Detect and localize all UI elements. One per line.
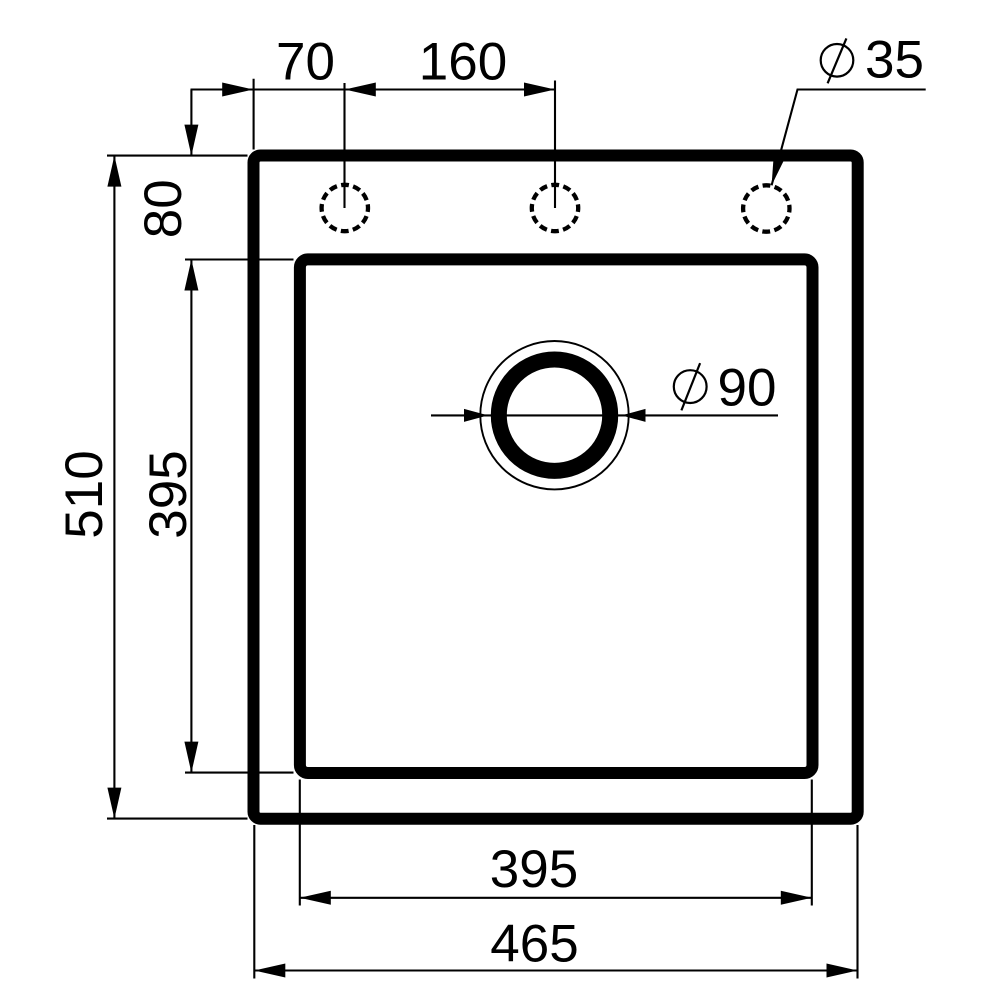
svg-text:395: 395 xyxy=(490,840,578,899)
svg-text:465: 465 xyxy=(490,915,578,974)
svg-text:510: 510 xyxy=(55,450,114,538)
svg-text:35: 35 xyxy=(865,31,924,90)
svg-text:90: 90 xyxy=(718,359,777,418)
svg-text:395: 395 xyxy=(139,450,198,538)
svg-text:70: 70 xyxy=(276,33,335,92)
svg-text:160: 160 xyxy=(419,33,507,92)
svg-text:80: 80 xyxy=(134,179,193,238)
